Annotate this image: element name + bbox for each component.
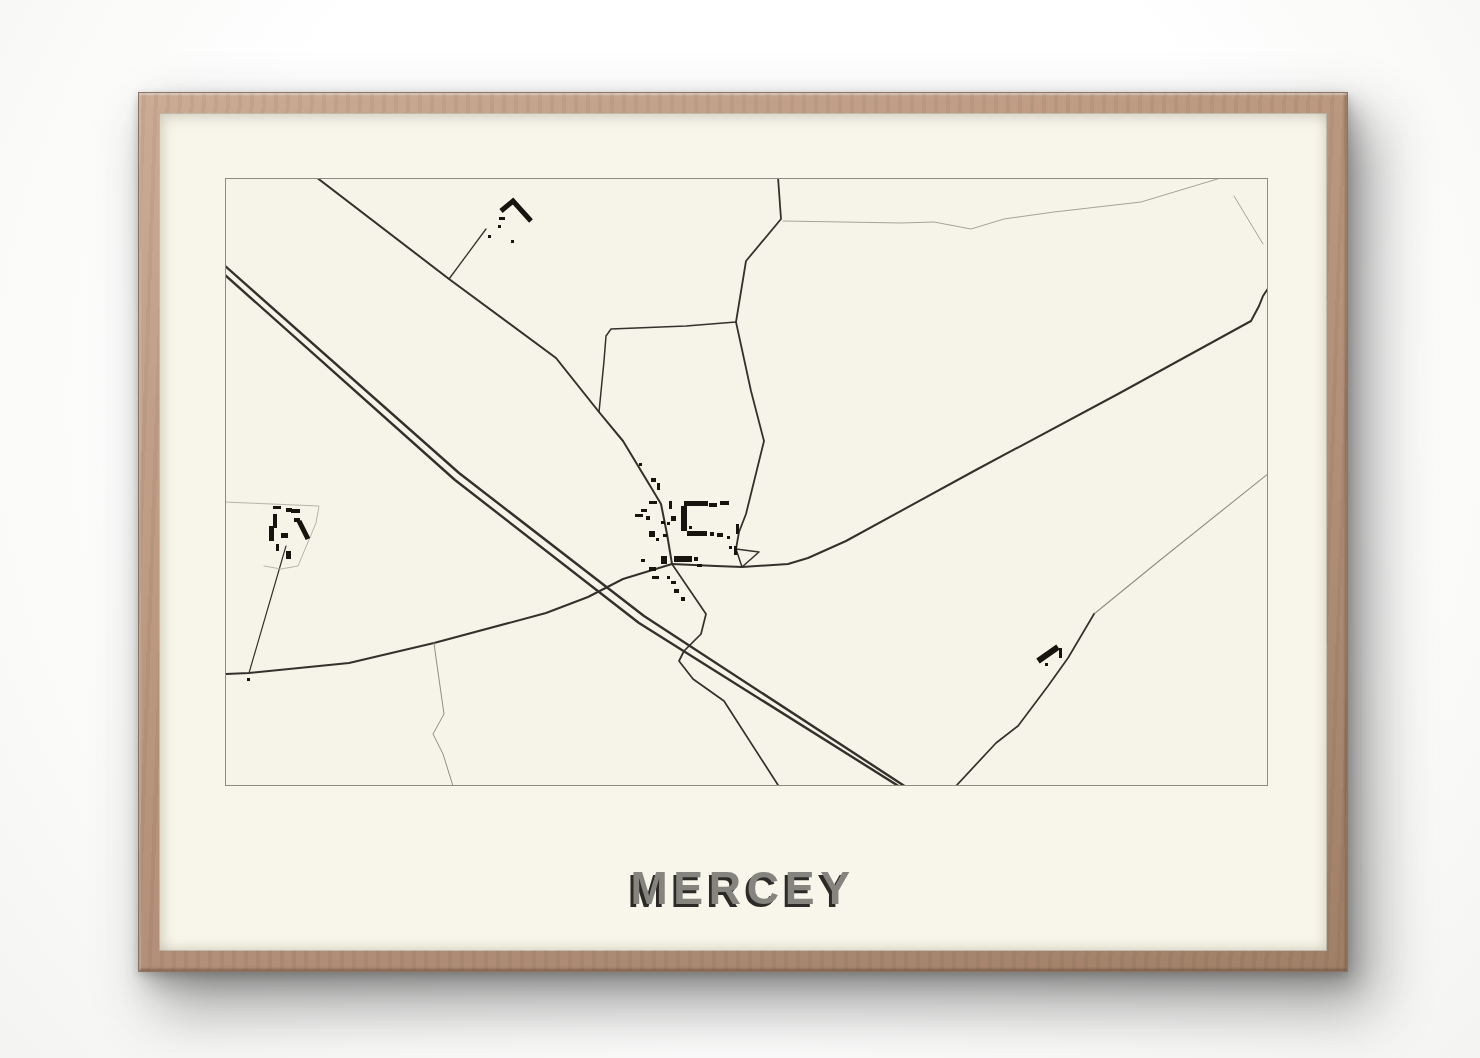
building <box>651 478 656 482</box>
farm-track-west <box>249 546 286 673</box>
building <box>635 514 643 517</box>
building <box>729 546 732 549</box>
building <box>669 501 672 509</box>
map-panel <box>225 178 1268 786</box>
se-road-upper <box>1094 473 1267 614</box>
building <box>674 556 692 562</box>
building <box>649 567 656 571</box>
building <box>681 597 685 601</box>
highway-line-2 <box>226 274 900 785</box>
triangle-junction <box>736 549 759 567</box>
highway-line-1 <box>226 265 906 785</box>
building <box>291 509 300 513</box>
building <box>687 531 707 536</box>
building <box>671 516 676 521</box>
building <box>286 551 291 559</box>
building <box>273 506 281 509</box>
south-road <box>672 564 778 785</box>
building <box>663 534 667 537</box>
field-line-north <box>783 179 1224 229</box>
building <box>657 483 660 490</box>
building <box>639 463 642 466</box>
building <box>681 506 687 531</box>
west-road <box>226 564 672 674</box>
building <box>720 501 729 505</box>
building-bar-east <box>1038 647 1058 661</box>
building <box>276 544 279 551</box>
building-chevron-north <box>501 201 531 221</box>
stream-south <box>433 643 453 785</box>
building-bar-left <box>299 521 308 539</box>
map-canvas <box>226 179 1267 785</box>
building <box>269 526 274 541</box>
building <box>649 501 657 504</box>
connector-road <box>599 322 736 412</box>
building <box>641 509 647 512</box>
building <box>671 581 676 584</box>
building <box>689 526 692 529</box>
building <box>499 217 505 220</box>
building <box>273 514 277 528</box>
building <box>661 521 665 524</box>
building <box>667 522 670 525</box>
poster-frame: MERCEY <box>138 92 1348 972</box>
poster-mat: MERCEY <box>159 113 1327 951</box>
building <box>734 546 737 555</box>
building <box>1045 663 1048 666</box>
building <box>661 556 667 564</box>
building <box>710 532 714 536</box>
building <box>641 559 645 562</box>
nw-road-main-street <box>316 179 672 564</box>
building <box>697 564 702 567</box>
se-road-lower <box>956 614 1094 785</box>
building <box>294 518 300 522</box>
building <box>649 531 655 537</box>
building <box>488 235 491 238</box>
building <box>667 576 670 579</box>
farm-track-north <box>449 229 486 279</box>
building <box>247 678 250 681</box>
building <box>717 533 723 537</box>
building <box>652 576 659 579</box>
building <box>281 533 288 538</box>
building <box>709 503 717 507</box>
building <box>684 501 708 506</box>
building <box>727 536 730 539</box>
building <box>511 240 514 243</box>
building <box>694 557 698 561</box>
building <box>674 589 679 593</box>
building <box>1059 648 1062 658</box>
north-road <box>736 179 781 549</box>
building <box>736 524 739 534</box>
building <box>646 516 650 520</box>
building <box>498 225 501 228</box>
building <box>656 538 659 541</box>
poster-title: MERCEY <box>188 860 1298 920</box>
field-line-ne <box>1234 196 1263 244</box>
